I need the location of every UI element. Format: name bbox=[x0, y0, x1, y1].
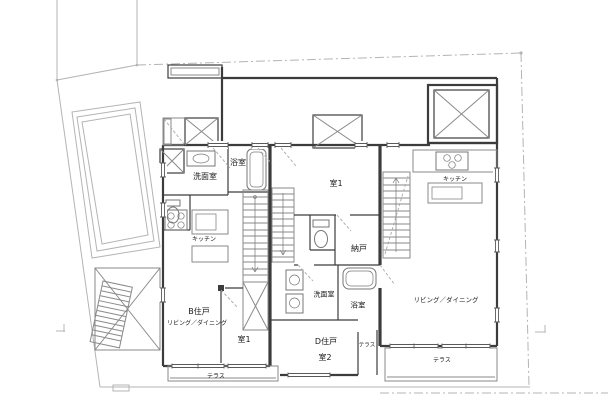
floor-plan-drawing bbox=[0, 0, 610, 409]
shaft-boxes bbox=[160, 85, 497, 173]
unit-d-interior bbox=[270, 188, 380, 320]
parking-area bbox=[72, 102, 160, 258]
outdoor-stair bbox=[90, 268, 160, 350]
exterior-walls bbox=[163, 65, 497, 375]
unit-b-interior bbox=[163, 145, 270, 366]
windows bbox=[159, 141, 501, 379]
site-boundary bbox=[56, 0, 608, 393]
floor-plan-page: 浴室洗面室キッチン室1納戸キッチンリビング／ダイニングテラスB住戸リビング／ダイ… bbox=[0, 0, 610, 409]
